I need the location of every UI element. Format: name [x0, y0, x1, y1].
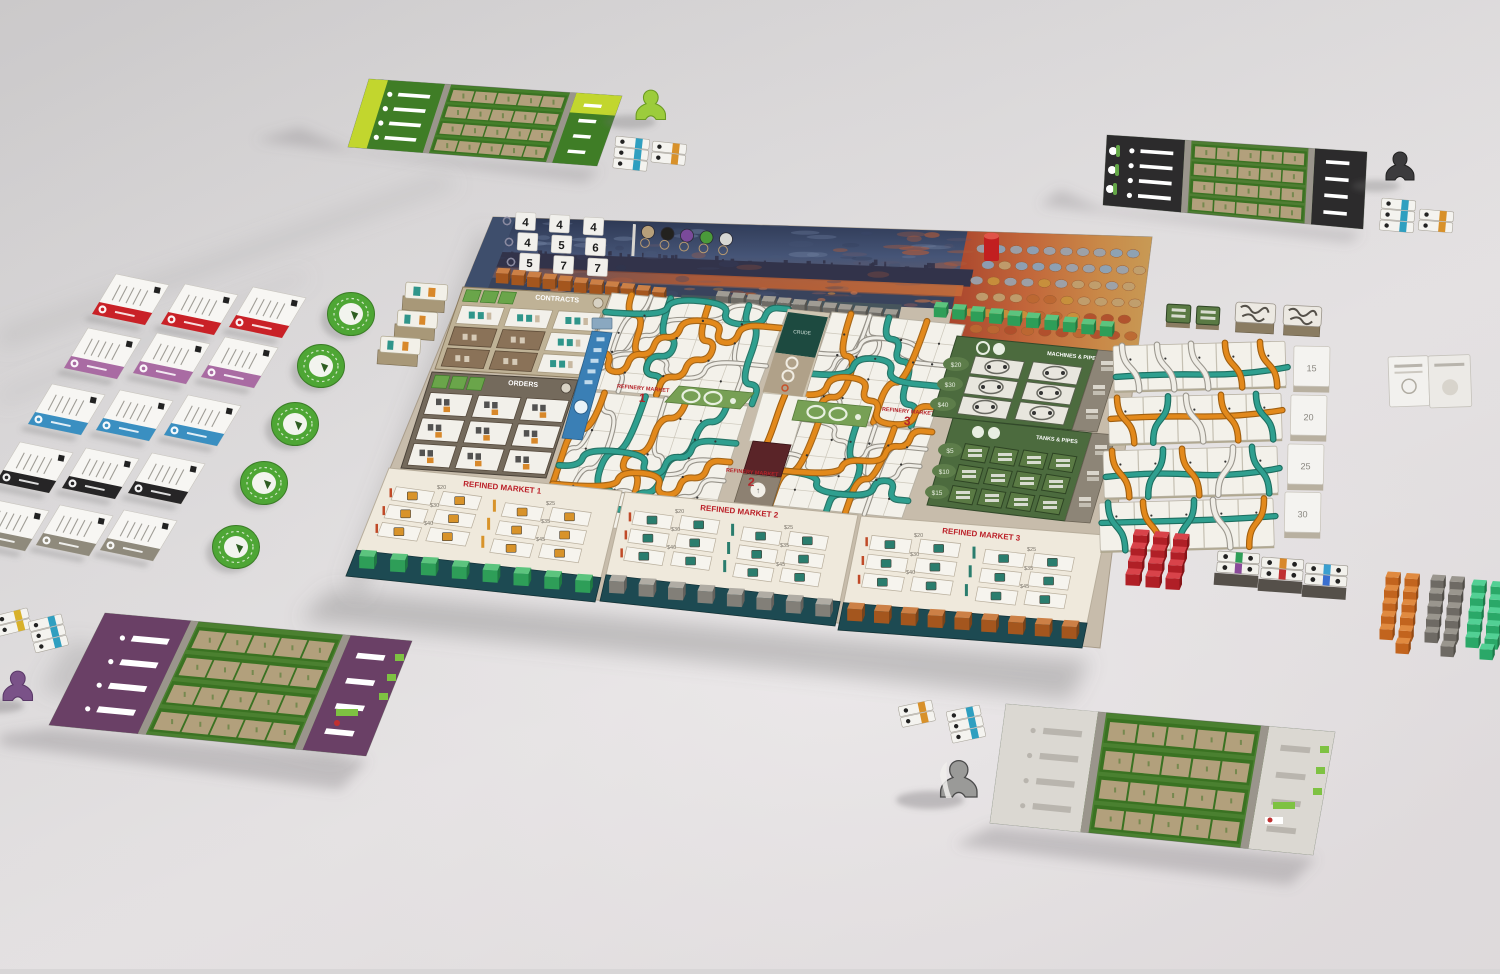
svg-text:$40: $40: [424, 521, 433, 527]
svg-text:$30: $30: [671, 527, 680, 533]
svg-text:$20: $20: [951, 362, 962, 369]
svg-text:$45: $45: [1020, 584, 1029, 590]
svg-text:$45: $45: [776, 562, 785, 568]
svg-text:4: 4: [524, 237, 532, 249]
svg-text:5: 5: [526, 258, 534, 270]
svg-text:30: 30: [1298, 509, 1308, 519]
svg-text:$10: $10: [939, 469, 950, 476]
svg-text:4: 4: [590, 222, 598, 234]
svg-text:$40: $40: [906, 570, 915, 576]
svg-text:$30: $30: [945, 382, 956, 389]
svg-text:$20: $20: [437, 485, 446, 491]
svg-text:$15: $15: [932, 490, 943, 497]
svg-text:$25: $25: [1027, 547, 1036, 553]
svg-text:$40: $40: [667, 545, 676, 551]
svg-text:7: 7: [594, 263, 601, 275]
svg-text:$45: $45: [536, 537, 545, 543]
svg-text:$35: $35: [1024, 566, 1033, 572]
svg-text:↑: ↑: [756, 486, 760, 495]
svg-text:$30: $30: [430, 503, 439, 509]
svg-text:4: 4: [522, 217, 530, 229]
svg-text:6: 6: [592, 242, 599, 254]
svg-text:25: 25: [1301, 461, 1311, 471]
svg-text:7: 7: [560, 260, 567, 272]
svg-text:4: 4: [556, 219, 564, 231]
svg-text:$5: $5: [946, 448, 954, 455]
svg-text:$20: $20: [914, 533, 923, 539]
svg-text:$35: $35: [780, 543, 789, 549]
svg-text:20: 20: [1304, 412, 1314, 422]
svg-text:$40: $40: [938, 402, 949, 409]
svg-text:$25: $25: [784, 525, 793, 531]
svg-text:15: 15: [1307, 363, 1317, 373]
svg-text:$30: $30: [910, 552, 919, 558]
svg-text:$20: $20: [675, 509, 684, 515]
svg-text:$25: $25: [546, 501, 555, 507]
svg-text:5: 5: [558, 240, 566, 252]
svg-text:$35: $35: [541, 519, 550, 525]
